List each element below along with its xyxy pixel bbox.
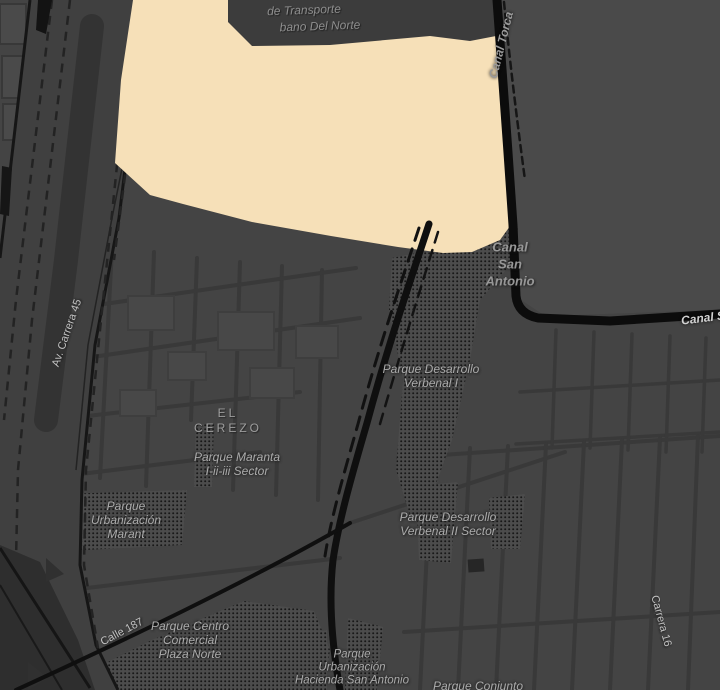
park-verbenal-2-area — [416, 482, 458, 563]
dark-building-marker — [468, 558, 485, 572]
park-maranta-area — [194, 424, 214, 487]
park-verbenal-2-area-b — [489, 494, 525, 549]
terminal-building-band — [228, 0, 496, 46]
superblock-area — [500, 0, 720, 316]
map-viewport[interactable]: de Transporte bano Del Norte Canal Torca… — [0, 0, 720, 690]
park-hacienda-area-east — [345, 618, 383, 690]
map-canvas — [0, 0, 720, 690]
